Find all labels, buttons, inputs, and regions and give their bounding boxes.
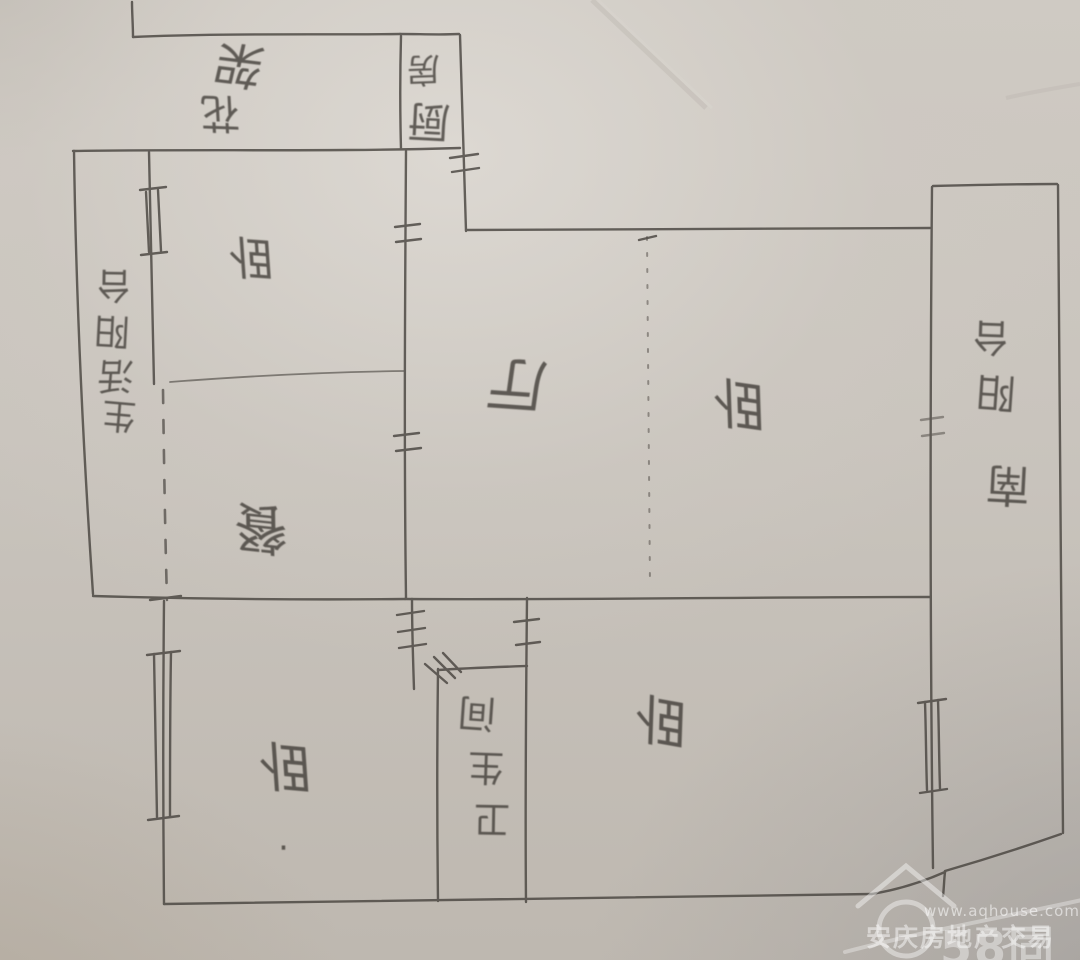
room-label-kitchen-char: 房	[405, 51, 440, 86]
room-label-service-balcony-char: 生	[101, 397, 138, 434]
paper-crease-2	[1006, 84, 1080, 98]
room-label-south-balcony-char: 南	[985, 461, 1031, 507]
floor-plan-photo: 架 花 房 厨 卧 台 阳 活 生 餐 厅 卧 台 阳 南 卧 · 间 生 卫 …	[0, 0, 1080, 960]
floor-plan-walls	[0, 0, 1080, 960]
room-label-flower-rack-char: 花	[199, 91, 241, 132]
room-label-bathroom-char: 生	[467, 747, 504, 784]
room-label-bathroom-char: 卫	[474, 800, 511, 837]
dashed-balcony-line	[163, 390, 167, 600]
room-label-service-balcony-char: 阳	[93, 311, 131, 349]
pencil-dot: ·	[278, 830, 289, 864]
room-label-south-balcony-char: 台	[971, 317, 1010, 356]
paper-crease-highlight	[598, 0, 712, 108]
room-label-kitchen-char: 厨	[407, 99, 451, 143]
room-label-south-balcony-char: 阳	[975, 371, 1018, 414]
room-label-service-balcony-char: 活	[96, 356, 135, 392]
paper-crease	[592, 0, 706, 108]
room-label-dining: 餐	[234, 497, 289, 557]
room-label-bathroom-char: 间	[457, 693, 498, 734]
room-label-bedroom-northwest: 卧	[226, 232, 275, 282]
watermark-brand-logo: 58同城	[940, 912, 1080, 960]
room-label-service-balcony-char: 台	[96, 266, 133, 303]
room-label-bedroom-southwest: 卧	[256, 735, 314, 794]
dotted-partition-hall-bedroom	[647, 237, 650, 585]
wall-lines	[73, 2, 1063, 904]
room-label-hall: 厅	[484, 353, 550, 415]
room-label-bedroom-east: 卧	[711, 371, 766, 433]
room-label-bedroom-southeast: 卧	[633, 687, 688, 751]
